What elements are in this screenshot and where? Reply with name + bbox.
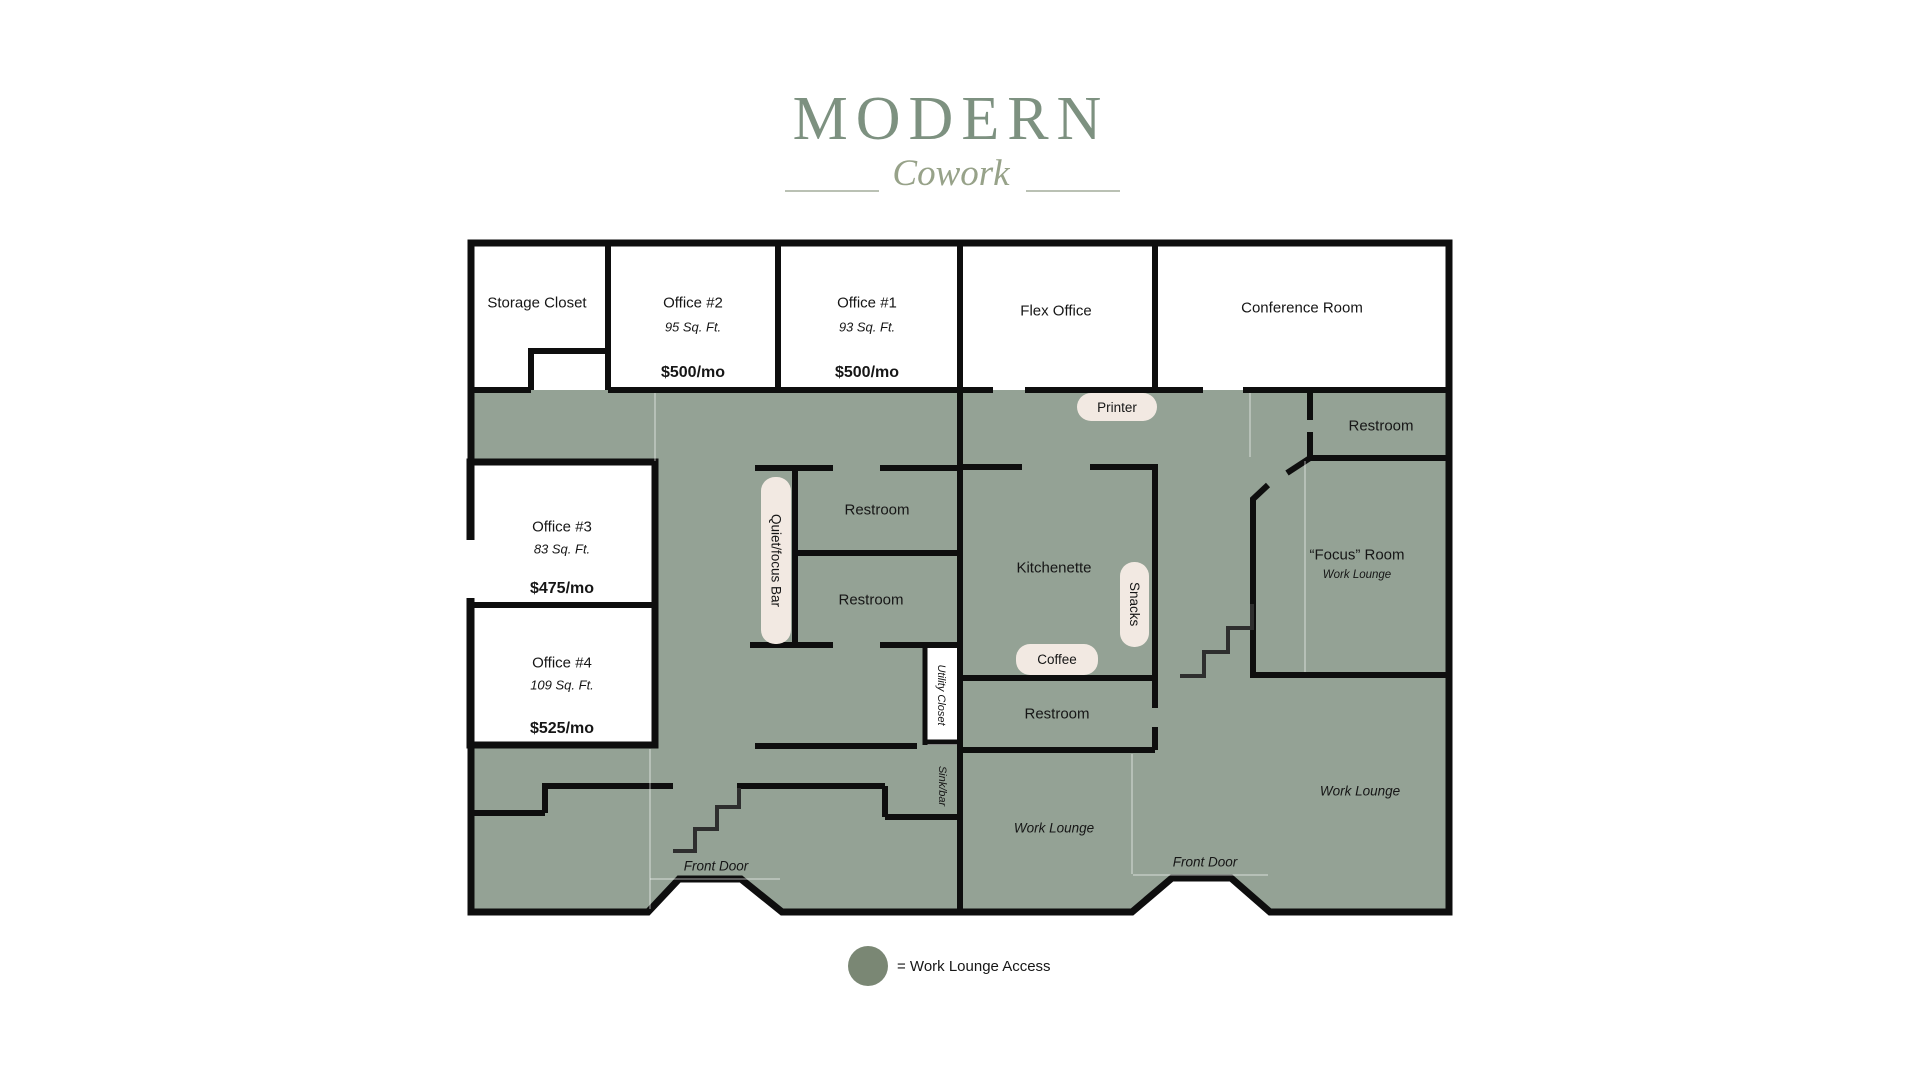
office3-area: 83 Sq. Ft. <box>534 542 590 557</box>
restroom-upper-mid-label: Restroom <box>844 502 909 519</box>
work-lounge-mid-label: Work Lounge <box>1014 821 1094 836</box>
work-lounge-access-dot <box>848 946 888 986</box>
quiet-focus-bar-pill: Quiet/focus Bar <box>761 477 791 644</box>
office2-price: $500/mo <box>661 364 725 382</box>
legend: = Work Lounge Access <box>848 946 1051 986</box>
office2-area: 95 Sq. Ft. <box>665 320 721 335</box>
utility-closet-label: Utility Closet <box>935 664 947 725</box>
coffee-pill: Coffee <box>1016 644 1098 675</box>
kitchenette-label: Kitchenette <box>1016 560 1091 577</box>
office3-label: Office #3 <box>532 519 592 536</box>
legend-label: = Work Lounge Access <box>897 958 1051 975</box>
office3-price: $475/mo <box>530 580 594 598</box>
printer-pill: Printer <box>1077 393 1157 421</box>
flex-office-label: Flex Office <box>1020 303 1091 320</box>
office1-area: 93 Sq. Ft. <box>839 320 895 335</box>
front-door-left-label: Front Door <box>684 859 749 874</box>
office4-label: Office #4 <box>532 655 592 672</box>
work-lounge-right-label: Work Lounge <box>1320 784 1400 799</box>
restroom-top-right-label: Restroom <box>1348 418 1413 435</box>
snacks-pill: Snacks <box>1120 562 1149 647</box>
focus-room-sublabel: Work Lounge <box>1323 569 1391 581</box>
conference-room-label: Conference Room <box>1241 300 1363 317</box>
front-door-right-label: Front Door <box>1173 855 1238 870</box>
left-wall-opening <box>464 540 476 598</box>
office1-price: $500/mo <box>835 364 899 382</box>
focus-room-label: “Focus” Room <box>1309 547 1404 564</box>
restroom-kitchen-label: Restroom <box>1024 706 1089 723</box>
office4-area: 109 Sq. Ft. <box>530 678 594 693</box>
floor-plan-poster: MODERN Cowork <box>0 0 1920 1080</box>
office4-price: $525/mo <box>530 720 594 738</box>
sink-bar-label: Sink/bar <box>936 766 948 806</box>
office1-label: Office #1 <box>837 295 897 312</box>
office2-label: Office #2 <box>663 295 723 312</box>
floor-plan-drawing <box>0 0 1920 1080</box>
storage-closet-label: Storage Closet <box>487 295 586 312</box>
restroom-lower-mid-label: Restroom <box>838 592 903 609</box>
